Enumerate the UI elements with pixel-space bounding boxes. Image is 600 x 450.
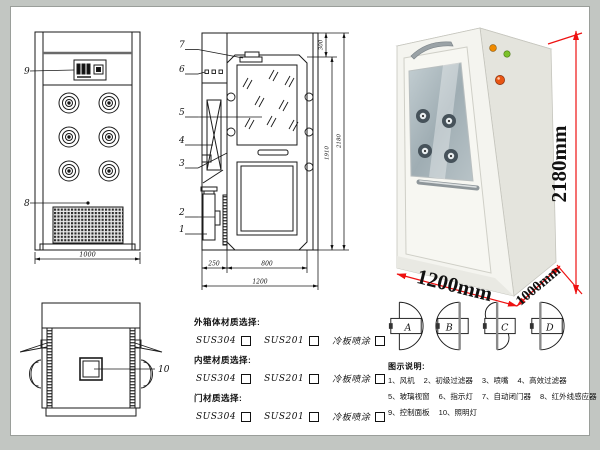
material-selection: 外箱体材质选择: SUS304 SUS201 冷板喷涂 内壁材质选择: SUS3… <box>194 316 382 430</box>
material-checkbox[interactable] <box>309 412 319 422</box>
legend-title: 图示说明: <box>388 361 588 372</box>
top-view-outline <box>42 303 140 416</box>
legend-item-glass: 5、玻璃视窗 <box>388 391 430 402</box>
material-checkbox[interactable] <box>375 336 385 346</box>
product-photo: 2180mm 1200mm 1000mm <box>383 16 598 331</box>
callout-glass-window: 5 <box>179 108 185 118</box>
dim-250: 250 <box>207 261 220 268</box>
legend-item-indicator: 6、指示灯 <box>439 391 473 402</box>
material-option-label: 冷板喷涂 <box>332 372 370 385</box>
dim-2180: 2180 <box>337 134 343 149</box>
front-view-drawing: 9 8 1000 <box>20 25 180 270</box>
callout-prefilter: 2 <box>178 208 185 218</box>
material-option-label: SUS201 <box>264 412 304 422</box>
control-panel <box>74 60 106 80</box>
legend-item-nozzle: 3、喷嘴 <box>482 375 509 386</box>
material-group-label: 内壁材质选择: <box>194 354 382 366</box>
material-option-label: SUS201 <box>264 374 304 384</box>
dim-300: 300 <box>319 39 325 50</box>
material-option-label: SUS304 <box>196 374 236 384</box>
legend-row: 5、玻璃视窗 6、指示灯 7、自动闭门器 8、红外线感应器 <box>388 391 588 402</box>
door-option-d[interactable]: D <box>528 297 566 355</box>
material-checkbox[interactable] <box>241 336 251 346</box>
door-option-letter: A <box>403 322 411 333</box>
material-group-outer-box: 外箱体材质选择: SUS304 SUS201 冷板喷涂 <box>194 316 382 347</box>
material-checkbox[interactable] <box>309 374 319 384</box>
door-assembly <box>227 55 307 250</box>
front-width-value: 1000 <box>79 251 96 259</box>
legend-row: 1、风机 2、初级过滤器 3、喷嘴 4、高效过滤器 <box>388 375 588 386</box>
door-swing-options: A B C D <box>387 297 579 355</box>
air-return-grille <box>53 207 123 243</box>
cabinet-body <box>397 28 556 296</box>
material-option-label: SUS304 <box>196 412 236 422</box>
door-option-letter: D <box>545 322 554 333</box>
side-nozzles <box>227 93 313 171</box>
legend-item-hepa: 4、高效过滤器 <box>518 375 567 386</box>
dim-1910: 1910 <box>325 146 331 160</box>
legend-item-ir-sensor: 8、红外线感应器 <box>540 391 597 402</box>
air-shower-datasheet: 9 8 1000 <box>0 0 600 450</box>
front-base <box>40 244 135 250</box>
material-group-label: 门材质选择: <box>194 392 382 404</box>
legend-row: 9、控制面板 10、照明灯 <box>388 407 588 418</box>
door-option-c[interactable]: C <box>481 297 519 355</box>
legend-item-prefilter: 2、初级过滤器 <box>424 375 473 386</box>
dim-800: 800 <box>261 261 273 268</box>
material-option-label: SUS304 <box>196 336 236 346</box>
legend: 图示说明: 1、风机 2、初级过滤器 3、喷嘴 4、高效过滤器 5、玻璃视窗 6… <box>388 361 588 423</box>
callout-door-closer: 7 <box>179 41 185 51</box>
door-option-b[interactable]: B <box>434 297 472 355</box>
material-checkbox[interactable] <box>241 374 251 384</box>
dim-1200: 1200 <box>252 279 267 286</box>
material-option-label: SUS201 <box>264 336 304 346</box>
front-callouts <box>30 70 90 205</box>
side-section-drawing: 7 6 5 4 3 2 1 250 800 1200 300 1910 2180 <box>165 25 350 297</box>
door-option-letter: B <box>445 322 453 333</box>
callout-ceiling-light: 10 <box>158 365 170 375</box>
legend-item-light: 10、照明灯 <box>439 407 477 418</box>
legend-item-fan: 1、风机 <box>388 375 415 386</box>
door-closer <box>240 52 262 62</box>
filter-fan-unit <box>201 100 227 245</box>
legend-item-closer: 7、自动闭门器 <box>482 391 531 402</box>
top-view-drawing: 10 <box>20 288 195 438</box>
door-pull-slot <box>258 150 288 155</box>
photo-height-dim: 2180mm <box>547 125 571 202</box>
material-checkbox[interactable] <box>375 374 385 384</box>
side-cabinet-outline <box>202 33 318 250</box>
callout-nozzle: 3 <box>179 159 185 169</box>
material-option-label: 冷板喷涂 <box>332 410 370 423</box>
legend-item-control-panel: 9、控制面板 <box>388 407 430 418</box>
indicator-lights <box>205 70 223 74</box>
door-option-letter: C <box>501 322 509 333</box>
material-option-label: 冷板喷涂 <box>332 334 370 347</box>
material-checkbox[interactable] <box>241 412 251 422</box>
material-group-door: 门材质选择: SUS304 SUS201 冷板喷涂 <box>194 392 382 423</box>
material-checkbox[interactable] <box>309 336 319 346</box>
glass-hatching <box>243 70 298 131</box>
callout-indicator-lights: 6 <box>179 65 185 75</box>
material-group-inner-wall: 内壁材质选择: SUS304 SUS201 冷板喷涂 <box>194 354 382 385</box>
callout-grille: 8 <box>24 199 30 209</box>
material-group-label: 外箱体材质选择: <box>194 316 382 328</box>
door-option-a[interactable]: A <box>387 297 425 355</box>
callout-fan: 1 <box>179 225 185 235</box>
callout-control-panel: 9 <box>24 67 30 77</box>
front-nozzles <box>59 93 119 181</box>
callout-hepa-filter: 4 <box>178 136 185 146</box>
material-checkbox[interactable] <box>375 412 385 422</box>
